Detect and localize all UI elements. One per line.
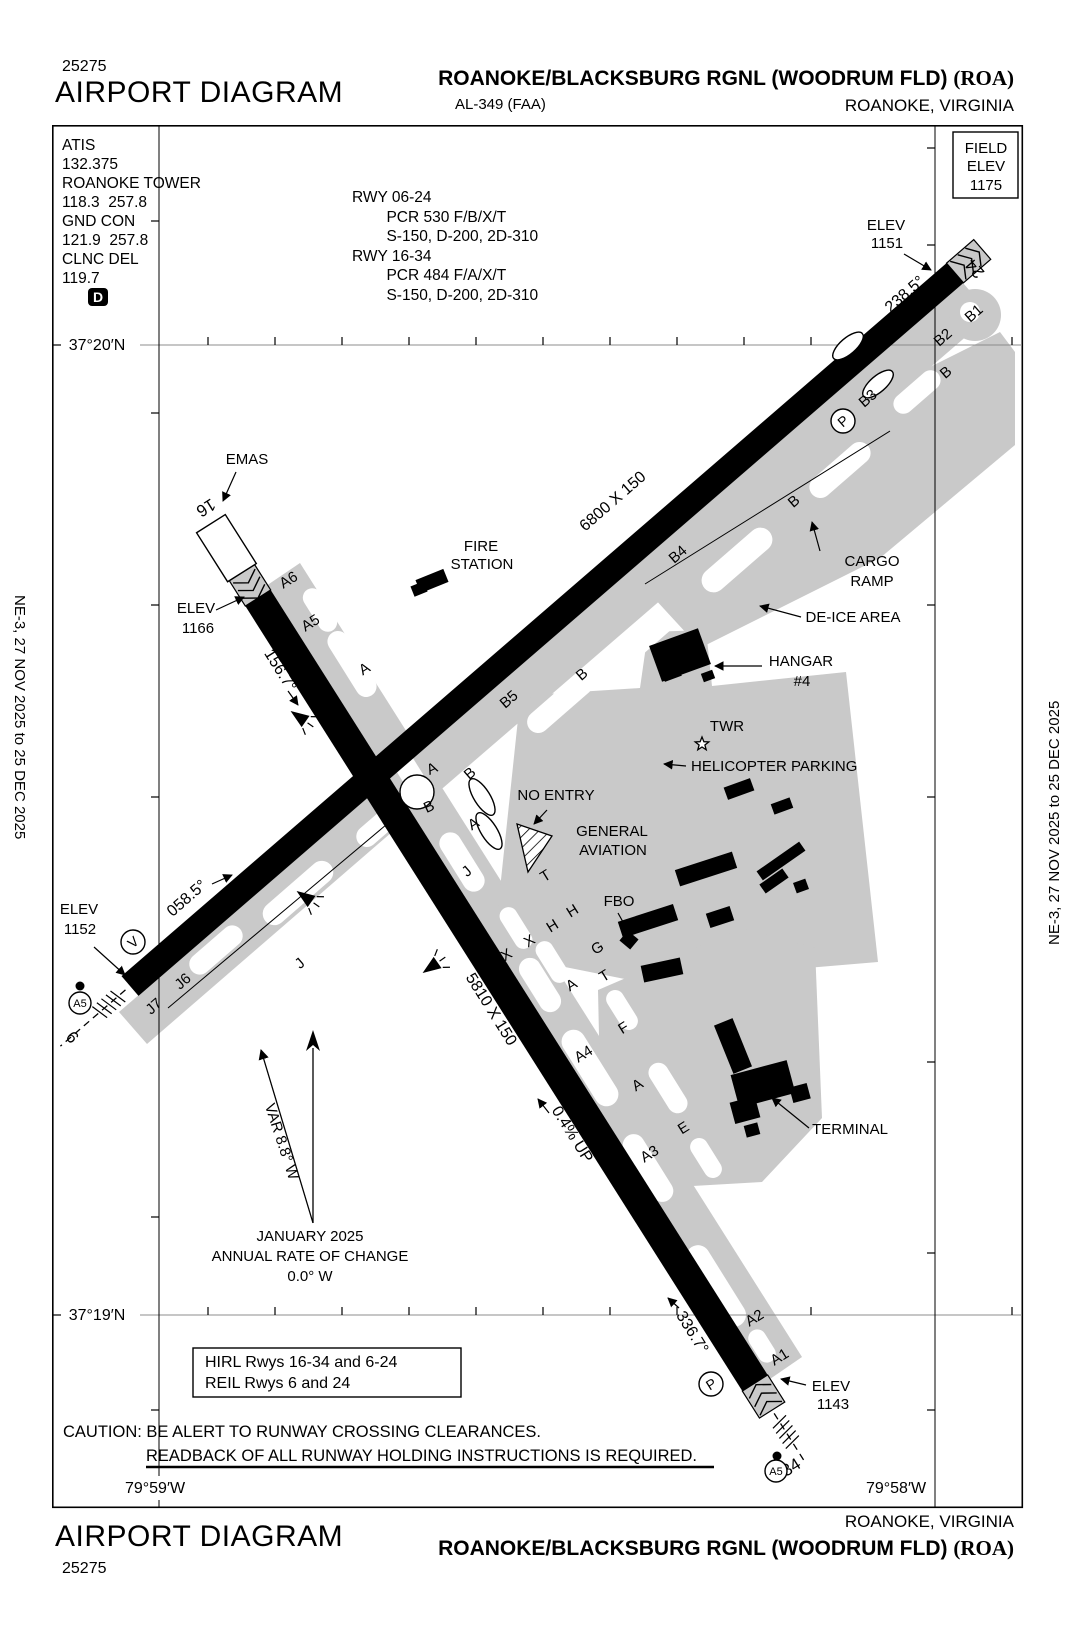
circled-marker: A5 [69, 992, 91, 1014]
airport-title: ROANOKE/BLACKSBURG RGNL (WOODRUM FLD) (R… [438, 66, 1014, 91]
page-title: AIRPORT DIAGRAM [55, 76, 343, 110]
map-label: J [292, 955, 309, 973]
map-label: ELEV [60, 901, 98, 918]
threshold-16-emas [197, 515, 273, 608]
map-label: 1175 [970, 177, 1002, 194]
al-number: AL-349 (FAA) [455, 96, 546, 113]
map-label: ELEV [967, 158, 1005, 175]
map-label: ANNUAL RATE OF CHANGE [212, 1248, 409, 1265]
map-label: HELICOPTER PARKING [691, 758, 857, 775]
map-label: FBO [604, 893, 635, 910]
light-dot [773, 1452, 782, 1461]
map-label: NO ENTRY [517, 787, 594, 804]
north-arrow [306, 1030, 320, 1051]
airport-code: (ROA) [953, 66, 1014, 90]
map-label: ELEV [177, 600, 215, 617]
map-label: ELEV [812, 1378, 850, 1395]
map-label: 0.0° W [287, 1268, 333, 1285]
airport-diagram-page: 25275 AIRPORT DIAGRAM ROANOKE/BLACKSBURG… [0, 0, 1076, 1650]
map-label: JANUARY 2025 [256, 1228, 363, 1245]
circled-marker: V [121, 930, 145, 954]
map-label: GENERAL [576, 823, 648, 840]
edition-note-left: NE-3, 27 NOV 2025 to 25 DEC 2025 [11, 595, 28, 839]
map-label: HIRL Rwys 16-34 and 6-24 [205, 1354, 397, 1371]
chart-number-top: 25275 [62, 58, 107, 76]
map-label: 1166 [182, 620, 214, 637]
map-label: 37°20′N [69, 337, 126, 354]
map-label: VAR 8.8° W [261, 1101, 302, 1182]
map-label: TWR [710, 718, 744, 735]
map-label: #4 [794, 673, 811, 690]
map-label: EMAS [226, 451, 269, 468]
footer-airport-title: ROANOKE/BLACKSBURG RGNL (WOODRUM FLD) (R… [438, 1536, 1014, 1561]
map-label: 6 [62, 1028, 83, 1048]
airport-name: ROANOKE/BLACKSBURG RGNL (WOODRUM FLD) [438, 67, 947, 90]
map-label: 1151 [871, 235, 903, 252]
footer-airport-code: (ROA) [953, 1536, 1014, 1560]
light-dot [76, 982, 85, 991]
map-label: CARGO [844, 553, 899, 570]
airport-map: FIELDELEV117537°20′N37°19′N79°59′W79°58′… [52, 125, 1024, 1509]
map-label: READBACK OF ALL RUNWAY HOLDING INSTRUCTI… [146, 1447, 697, 1465]
map-label: FIRE [464, 538, 498, 555]
map-label: AVIATION [579, 842, 647, 859]
map-label: DE-ICE AREA [805, 609, 900, 626]
map-label: 6800 X 150 [577, 468, 650, 535]
circled-marker: P [831, 409, 855, 433]
map-label: TERMINAL [812, 1121, 888, 1138]
footer-chart-number: 25275 [62, 1560, 107, 1578]
map-label: 1152 [64, 921, 96, 938]
map-label: REIL Rwys 6 and 24 [205, 1375, 350, 1392]
circled-marker: P [699, 1372, 723, 1396]
circled-marker: A5 [765, 1460, 787, 1482]
map-label: 1143 [817, 1396, 849, 1413]
city-state: ROANOKE, VIRGINIA [845, 96, 1014, 116]
map-label: RAMP [850, 573, 893, 590]
map-label: STATION [451, 556, 514, 573]
footer-city-state: ROANOKE, VIRGINIA [845, 1512, 1014, 1532]
edition-note-right: NE-3, 27 NOV 2025 to 25 DEC 2025 [1046, 701, 1063, 945]
map-label: 79°58′W [866, 1480, 927, 1497]
taxiway-network [119, 283, 1015, 1379]
map-label: CAUTION: BE ALERT TO RUNWAY CROSSING CLE… [63, 1423, 541, 1441]
map-label: FIELD [965, 140, 1008, 157]
circled-marker-label: A5 [73, 998, 86, 1010]
footer-airport-name: ROANOKE/BLACKSBURG RGNL (WOODRUM FLD) [438, 1537, 947, 1560]
map-label: 79°59′W [125, 1480, 186, 1497]
circled-marker-label: A5 [769, 1466, 782, 1478]
footer-title: AIRPORT DIAGRAM [55, 1520, 343, 1554]
map-label: 37°19′N [69, 1307, 126, 1324]
map-label: 16 [193, 495, 219, 521]
map-label: HANGAR [769, 653, 833, 670]
map-label: ELEV [867, 217, 905, 234]
